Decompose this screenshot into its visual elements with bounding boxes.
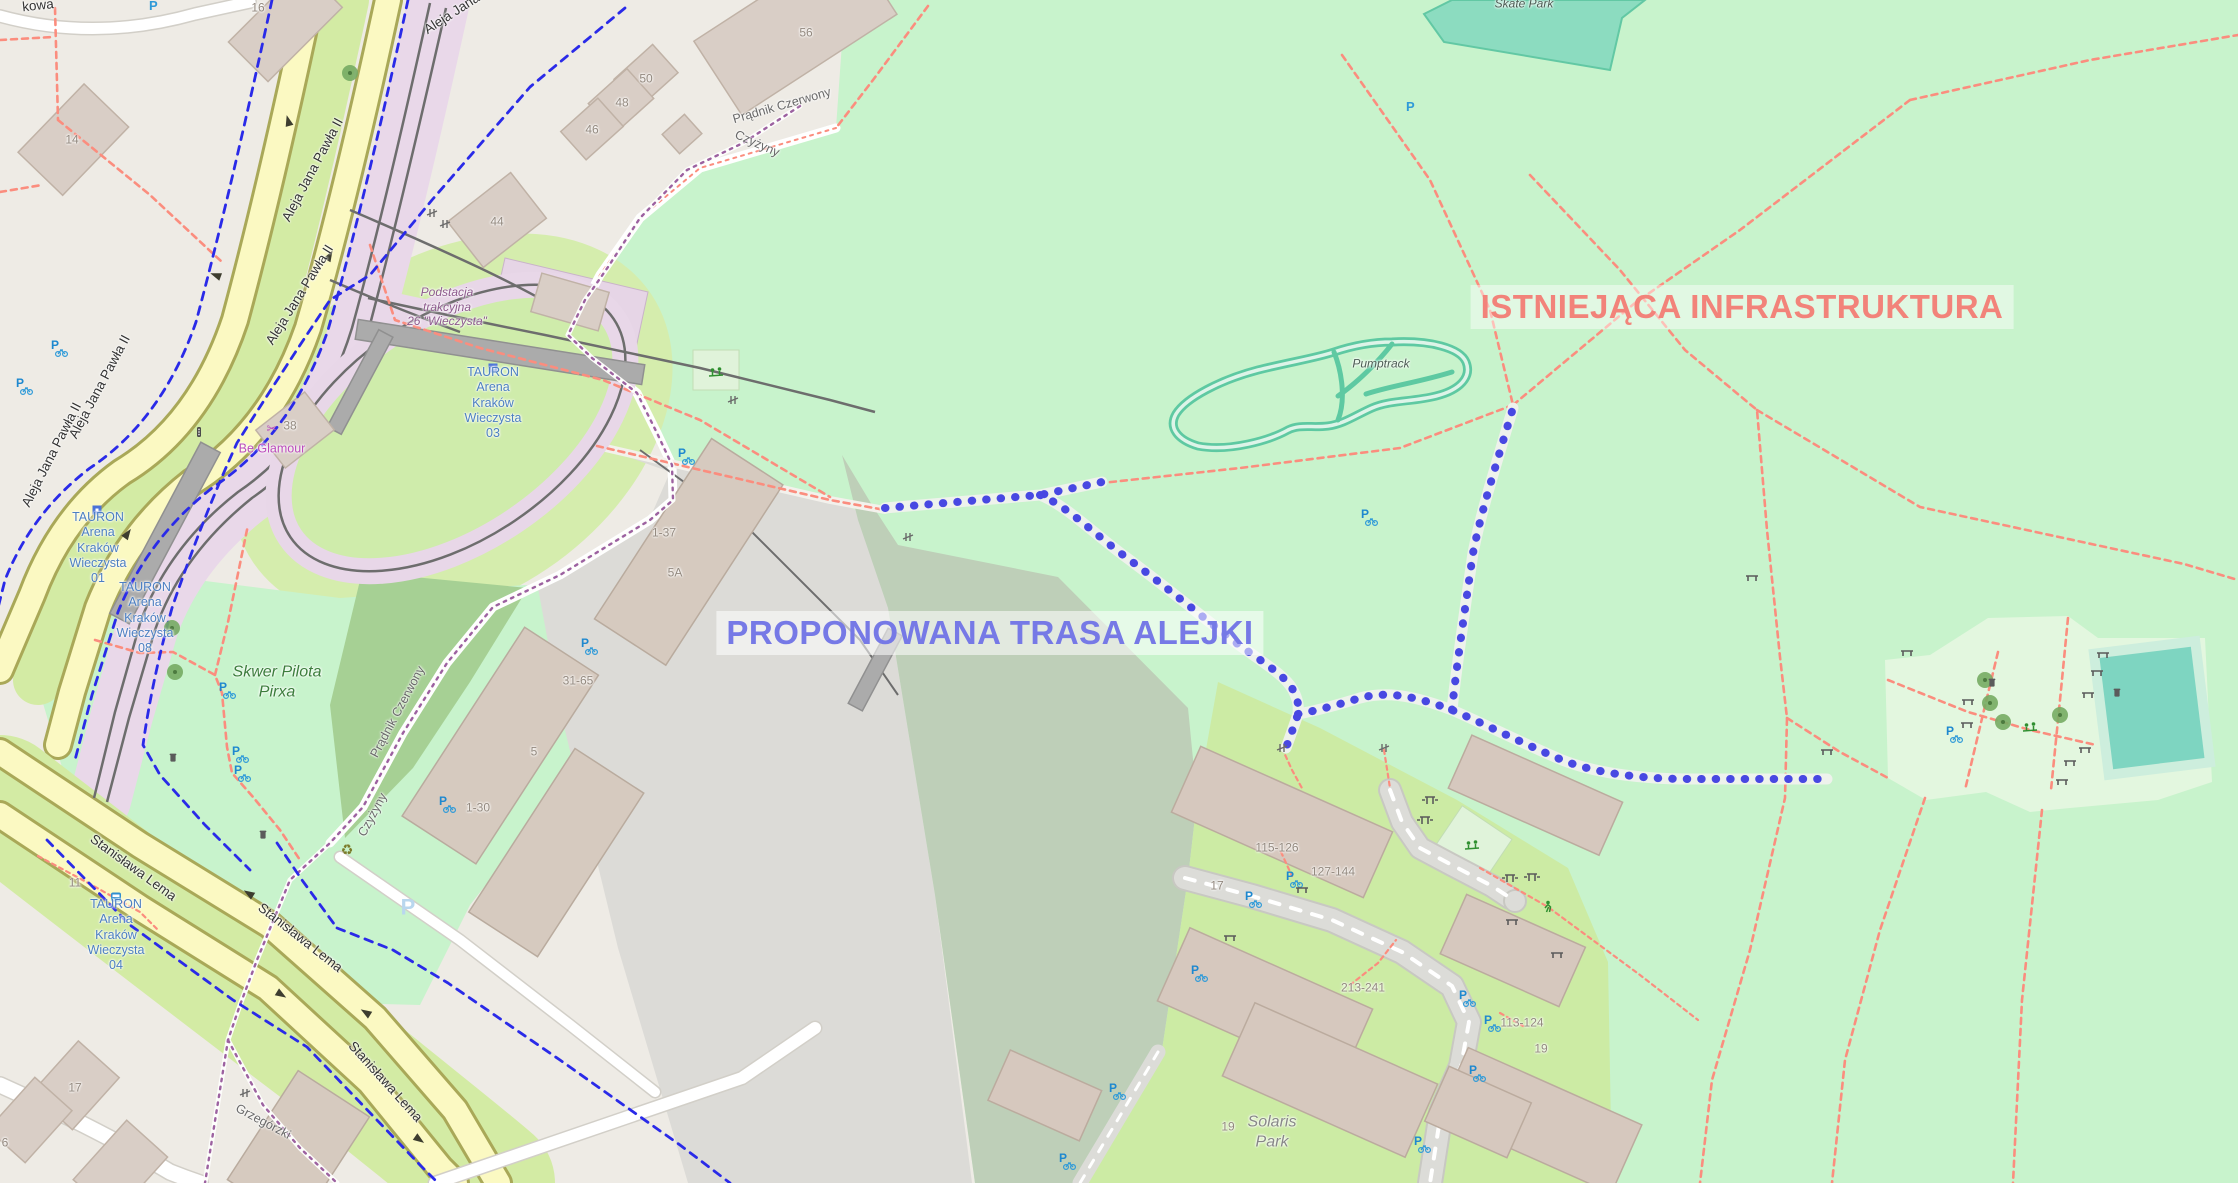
parking-icon [149, 0, 158, 13]
tram-stop-icon [489, 364, 498, 373]
waste-basket-icon [2114, 689, 2121, 697]
waste-basket-icon [170, 754, 177, 762]
existing-infrastructure-overlay-label: ISTNIEJĄCA INFRASTRUKTURA [1471, 285, 2014, 329]
tree-icon [1995, 714, 2011, 730]
tree-icon [164, 620, 180, 636]
bus-stop-icon [111, 893, 121, 902]
waste-basket-icon [1989, 679, 1996, 687]
tree-icon [1982, 695, 1998, 711]
playground-square-arena [693, 350, 739, 390]
proposed-route-overlay-label: PROPONOWANA TRASA ALEJKI [716, 611, 1263, 655]
parking-icon [1406, 99, 1415, 114]
tree-icon [2052, 707, 2068, 723]
waste-basket-icon [260, 831, 267, 839]
tram-stop-icon [93, 506, 102, 515]
map-base: P P [0, 0, 2238, 1183]
traffic-signal-icon [197, 427, 201, 437]
tree-icon [167, 664, 183, 680]
map-canvas[interactable]: P P [0, 0, 2238, 1183]
tree-icon [342, 65, 358, 81]
